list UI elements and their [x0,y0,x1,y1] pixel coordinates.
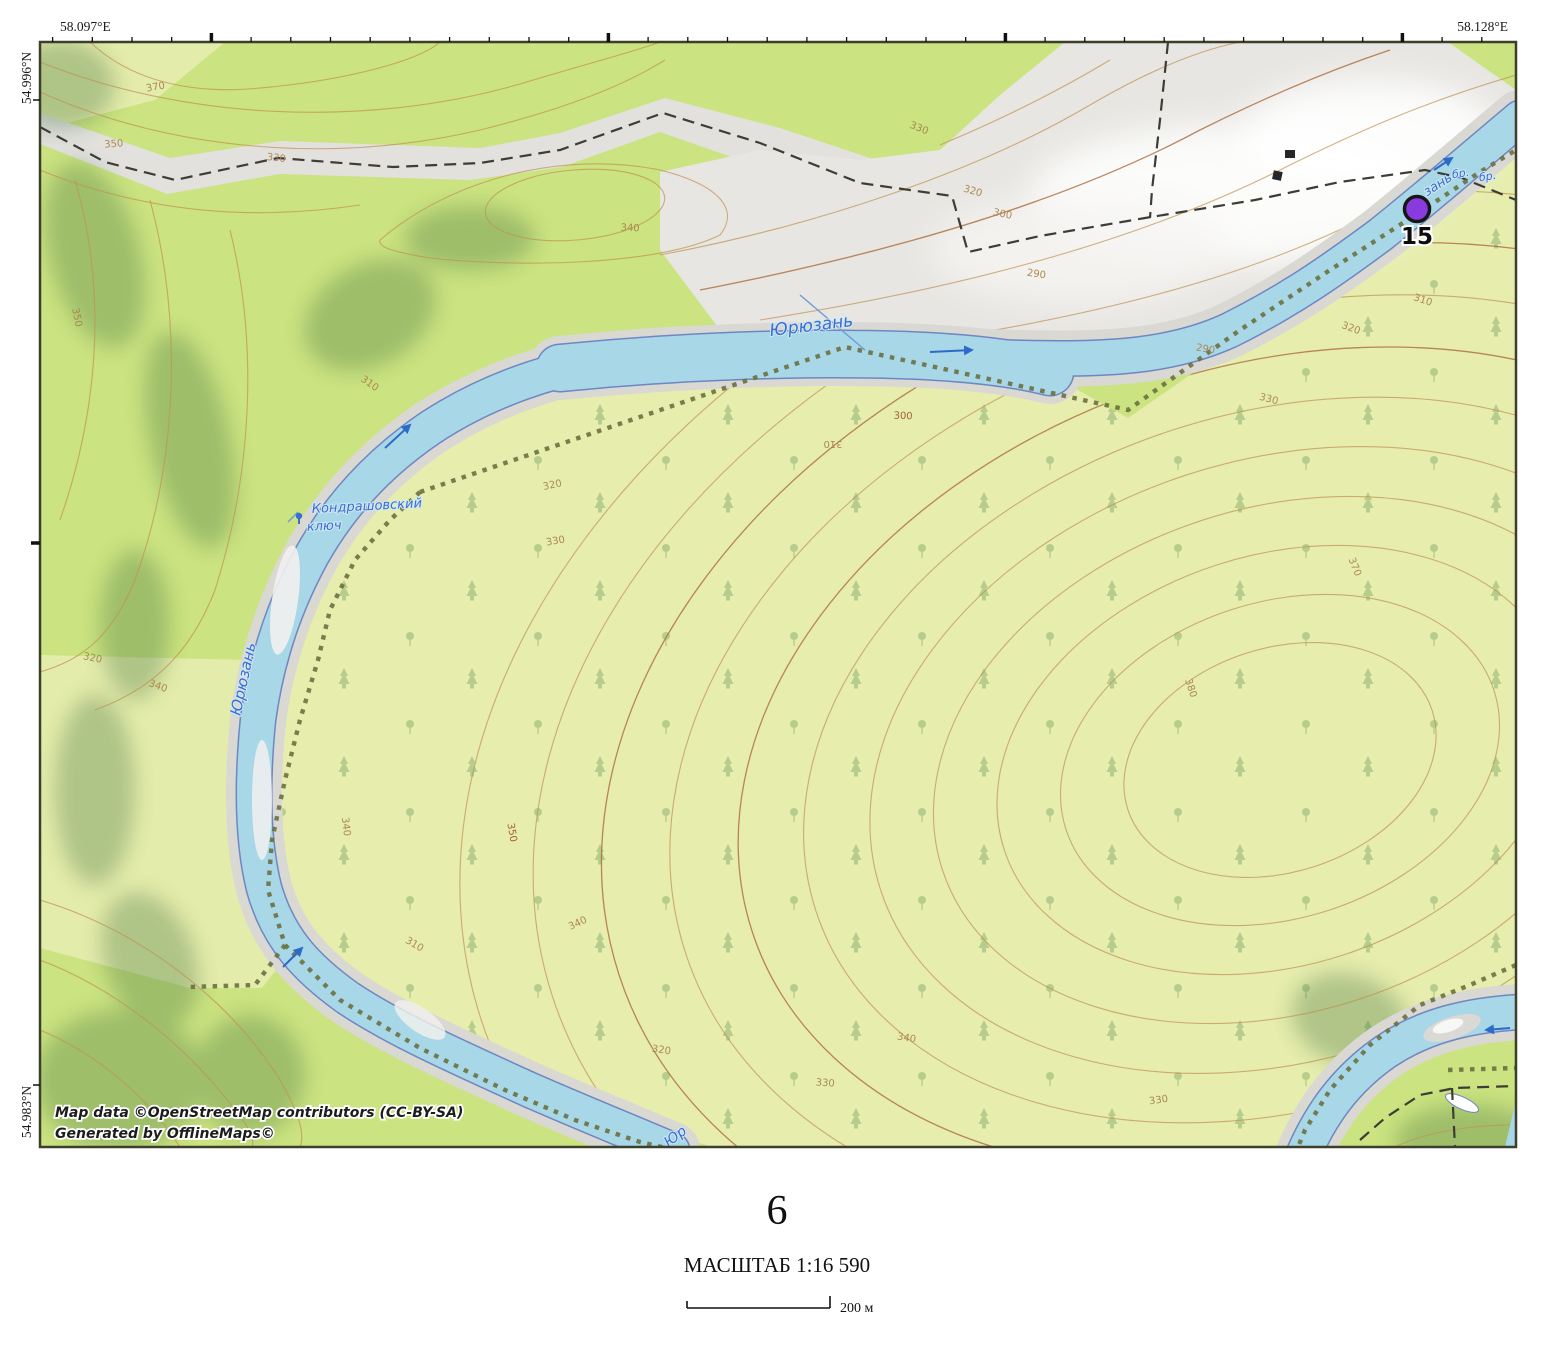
scale-bar-label: 200 м [840,1301,874,1316]
coord-left-bottom: 54.983°N [19,1086,34,1139]
coord-top-left: 58.097°E [60,19,111,34]
graticule-ticks-top [53,33,1482,42]
svg-text:310: 310 [823,438,842,449]
graticule-ticks-left [31,100,40,1085]
svg-text:330: 330 [815,1077,835,1089]
attribution-line1: Map data ©OpenStreetMap contributors (CC… [55,1105,463,1121]
building-icon [1285,150,1295,158]
waypoint-circle-icon [1405,197,1430,222]
spring-label-line2: ключ [306,518,342,535]
map-canvas: 370 350 330 340 330 320 300 290 290 300 … [0,0,1555,1360]
ford-label: бр. [1478,169,1497,184]
map-sheet-page: 370 350 330 340 330 320 300 290 290 300 … [0,0,1555,1360]
svg-text:340: 340 [339,817,352,837]
waypoint-label: 15 [1401,224,1433,250]
scale-bar [687,1296,830,1308]
svg-text:300: 300 [893,411,912,423]
map-content: 370 350 330 340 330 320 300 290 290 300 … [5,0,1555,1360]
attribution-line2: Generated by OfflineMaps© [55,1126,275,1142]
svg-text:330: 330 [266,152,286,165]
coord-left-top: 54.996°N [19,52,34,105]
svg-text:350: 350 [104,138,124,150]
scale-text: МАСШТАБ 1:16 590 [684,1253,870,1277]
waypoint-15: 15 [1401,197,1433,251]
page-number: 6 [767,1188,788,1234]
coord-top-right: 58.128°E [1457,19,1508,34]
building-icon [1272,170,1283,181]
ford-label: бр. [1451,166,1470,181]
svg-text:340: 340 [620,223,639,235]
